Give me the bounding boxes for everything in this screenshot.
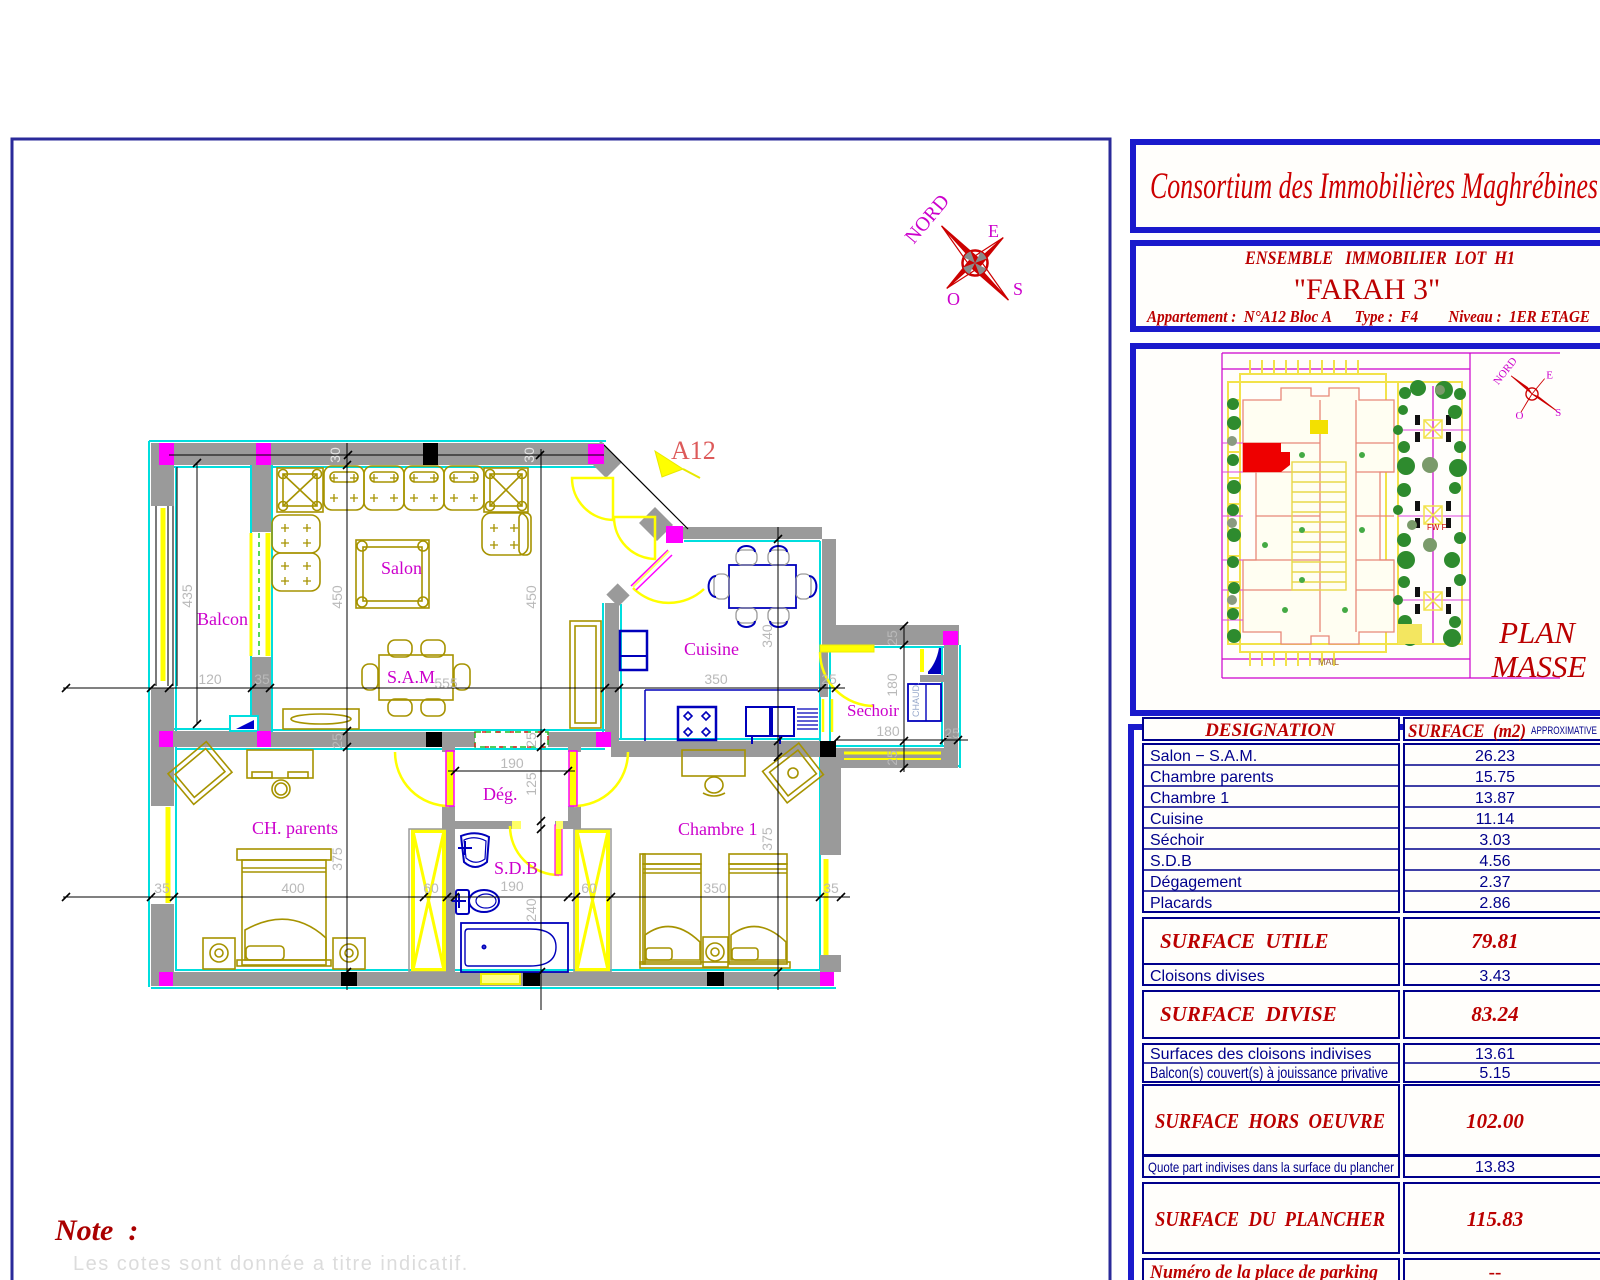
- svg-text:Numéro de la place de parking: Numéro de la place de parking: [1149, 1262, 1378, 1280]
- svg-text:FW F: FW F: [1427, 523, 1447, 532]
- svg-text:25: 25: [523, 732, 539, 748]
- svg-text:CHAUD.: CHAUD.: [911, 682, 921, 717]
- svg-text:190: 190: [500, 878, 524, 894]
- svg-text:ENSEMBLE IMMOBILIER LOT H1: ENSEMBLE IMMOBILIER LOT H1: [1244, 248, 1515, 269]
- svg-text:MAIL: MAIL: [1318, 657, 1339, 667]
- svg-text:SURFACE HORS OEUVRE: SURFACE HORS OEUVRE: [1155, 1109, 1385, 1133]
- svg-text:--: --: [1489, 1262, 1502, 1280]
- svg-text:Consortium des Immobilières Ma: Consortium des Immobilières Maghrébines: [1150, 166, 1598, 207]
- svg-text:5.15: 5.15: [1479, 1065, 1510, 1082]
- svg-text:Chambre 1: Chambre 1: [678, 819, 757, 839]
- svg-text:Cuisine: Cuisine: [684, 639, 739, 659]
- svg-text:25: 25: [944, 725, 960, 741]
- svg-text:S.D.B: S.D.B: [1150, 853, 1192, 870]
- svg-text:35: 35: [154, 880, 170, 896]
- svg-text:Cuisine: Cuisine: [1150, 811, 1203, 828]
- svg-text:Surfaces des cloisons indivise: Surfaces des cloisons indivises: [1150, 1046, 1371, 1063]
- svg-text:Balcon: Balcon: [197, 609, 248, 629]
- svg-text:13.87: 13.87: [1475, 790, 1515, 807]
- svg-text:Cloisons divises: Cloisons divises: [1150, 968, 1265, 985]
- svg-text:400: 400: [281, 880, 305, 896]
- svg-text:25: 25: [884, 630, 900, 646]
- svg-text:SURFACE (m2): SURFACE (m2): [1408, 721, 1526, 742]
- svg-text:PLAN: PLAN: [1498, 615, 1577, 650]
- svg-text:25: 25: [884, 750, 900, 766]
- svg-text:2.37: 2.37: [1479, 874, 1510, 891]
- svg-text:450: 450: [523, 585, 539, 609]
- svg-text:SURFACE DIVISE: SURFACE DIVISE: [1160, 1002, 1337, 1026]
- svg-text:E: E: [1546, 370, 1553, 382]
- svg-text:120: 120: [198, 671, 222, 687]
- svg-text:Chambre 1: Chambre 1: [1150, 790, 1229, 807]
- svg-text:35: 35: [254, 671, 270, 687]
- svg-text:35: 35: [823, 880, 839, 896]
- svg-text:"FARAH 3": "FARAH 3": [1294, 273, 1440, 306]
- svg-text:190: 190: [500, 755, 524, 771]
- svg-text:O: O: [947, 289, 960, 309]
- svg-text:26.23: 26.23: [1475, 748, 1515, 765]
- svg-text:375: 375: [329, 847, 345, 871]
- svg-text:O: O: [1516, 410, 1524, 422]
- svg-text:Note :: Note :: [54, 1214, 138, 1247]
- svg-text:79.81: 79.81: [1471, 929, 1518, 953]
- svg-text:13.83: 13.83: [1475, 1159, 1515, 1176]
- svg-text:435: 435: [179, 584, 195, 608]
- svg-text:S: S: [1555, 407, 1561, 419]
- svg-text:Salon − S.A.M.: Salon − S.A.M.: [1150, 748, 1257, 765]
- svg-text:30: 30: [521, 447, 537, 463]
- svg-text:180: 180: [876, 723, 900, 739]
- svg-text:375: 375: [759, 827, 775, 851]
- svg-text:450: 450: [329, 585, 345, 609]
- svg-text:S: S: [1013, 279, 1023, 299]
- svg-text:115.83: 115.83: [1467, 1207, 1524, 1231]
- svg-text:15.75: 15.75: [1475, 769, 1515, 786]
- svg-text:340: 340: [759, 624, 775, 648]
- svg-text:2.86: 2.86: [1479, 895, 1510, 912]
- svg-text:3.03: 3.03: [1479, 832, 1510, 849]
- svg-text:555: 555: [434, 675, 458, 691]
- svg-text:11.14: 11.14: [1476, 811, 1515, 828]
- svg-text:60: 60: [581, 880, 597, 896]
- svg-text:4.56: 4.56: [1479, 853, 1510, 870]
- svg-text:E: E: [988, 221, 999, 241]
- svg-text:Placards: Placards: [1150, 895, 1212, 912]
- svg-text:350: 350: [704, 671, 728, 687]
- svg-text:NORD: NORD: [901, 190, 954, 248]
- svg-text:A12: A12: [671, 436, 716, 465]
- svg-text:30: 30: [327, 447, 343, 463]
- svg-text:60: 60: [423, 880, 439, 896]
- svg-text:102.00: 102.00: [1466, 1109, 1524, 1133]
- svg-text:CH. parents: CH. parents: [252, 818, 338, 838]
- svg-text:Sechoir: Sechoir: [847, 701, 899, 720]
- svg-text:180: 180: [884, 673, 900, 697]
- svg-text:Balcon(s) couvert(s) à jouissa: Balcon(s) couvert(s) à jouissance privat…: [1150, 1065, 1388, 1082]
- svg-text:Chambre parents: Chambre parents: [1150, 769, 1274, 786]
- svg-text:25: 25: [329, 733, 345, 749]
- svg-text:Les cotes sont donnée a titre: Les cotes sont donnée a titre indicatif.: [73, 1253, 469, 1275]
- svg-text:MASSE: MASSE: [1491, 649, 1587, 684]
- svg-text:350: 350: [703, 880, 727, 896]
- svg-text:Appartement : N°A12 Bloc A: Appartement : N°A12 Bloc A Type : F4 Niv…: [1146, 307, 1590, 326]
- svg-text:25: 25: [821, 671, 837, 687]
- svg-text:DESIGNATION: DESIGNATION: [1204, 720, 1336, 741]
- svg-text:Quote part indivises dans la s: Quote part indivises dans la surface du …: [1148, 1159, 1394, 1175]
- svg-text:Salon: Salon: [381, 558, 422, 578]
- svg-text:240: 240: [523, 898, 539, 922]
- svg-text:83.24: 83.24: [1471, 1002, 1518, 1026]
- svg-text:Dégagement: Dégagement: [1150, 874, 1242, 891]
- svg-text:APPROXIMATIVE: APPROXIMATIVE: [1531, 725, 1597, 737]
- svg-text:Séchoir: Séchoir: [1150, 832, 1205, 849]
- svg-text:SURFACE DU PLANCHER: SURFACE DU PLANCHER: [1155, 1207, 1385, 1231]
- svg-text:125: 125: [523, 772, 539, 796]
- svg-text:S.D.B: S.D.B: [494, 858, 538, 878]
- svg-text:3.43: 3.43: [1479, 968, 1510, 985]
- svg-text:13.61: 13.61: [1475, 1046, 1515, 1063]
- svg-text:S.A.M: S.A.M: [387, 667, 435, 687]
- svg-text:Dég.: Dég.: [483, 784, 518, 804]
- svg-text:SURFACE UTILE: SURFACE UTILE: [1160, 929, 1328, 953]
